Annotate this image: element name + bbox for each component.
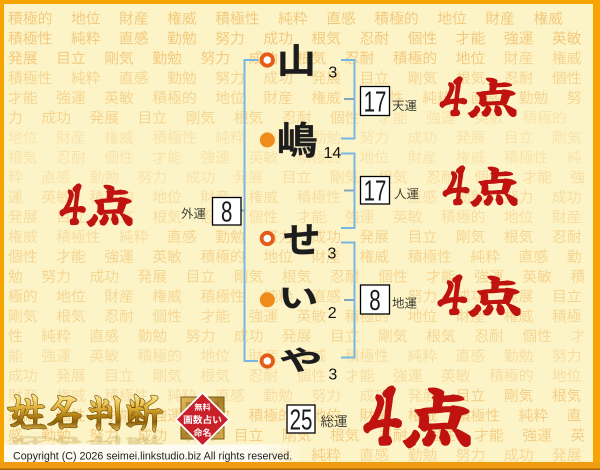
svg-text:8: 8 [221,198,232,229]
svg-text:Copyright (C) 2026 seimei.link: Copyright (C) 2026 seimei.linkstudio.biz… [13,451,292,463]
svg-text:2: 2 [328,305,337,322]
svg-text:3: 3 [328,65,337,82]
svg-text:25: 25 [290,405,313,436]
svg-text:17: 17 [364,87,387,118]
svg-text:3: 3 [328,367,337,384]
svg-text:3: 3 [327,246,336,263]
svg-text:14: 14 [324,145,342,162]
svg-text:8: 8 [369,286,380,317]
svg-text:17: 17 [364,177,387,208]
